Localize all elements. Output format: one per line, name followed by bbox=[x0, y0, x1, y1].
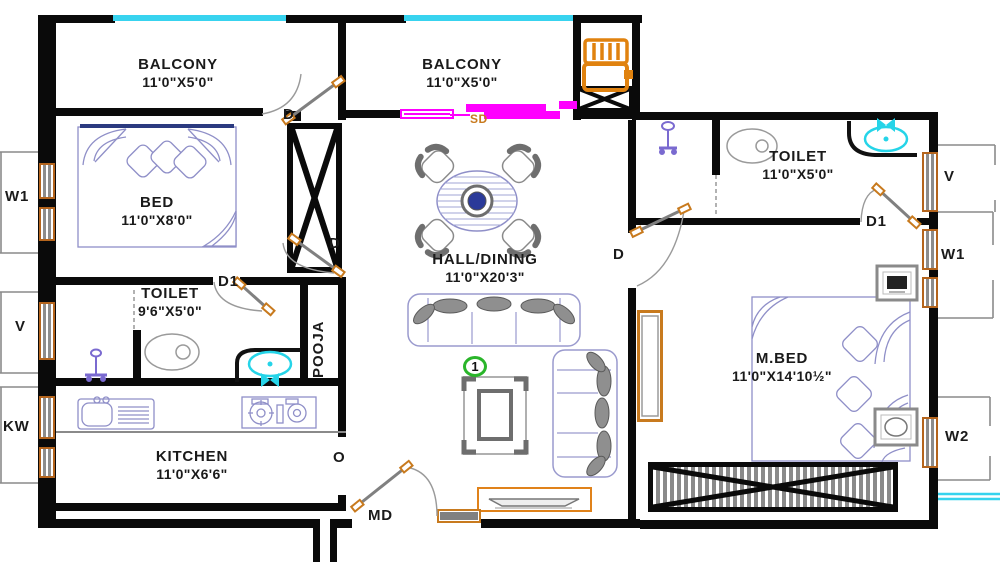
room-size: 11'0"X14'10½" bbox=[692, 368, 872, 385]
unit-number-marker: 1 bbox=[463, 356, 487, 377]
door-mbed bbox=[630, 204, 691, 286]
tv-icon bbox=[489, 499, 579, 508]
floor-plan: BALCONY 11'0"X5'0" BALCONY 11'0"X5'0" BE… bbox=[0, 0, 1000, 568]
wc-icon bbox=[145, 334, 199, 370]
window-label-w1-right: W1 bbox=[941, 246, 965, 264]
room-size: 11'0"X8'0" bbox=[67, 212, 247, 229]
door1-label: D1 bbox=[218, 273, 239, 291]
shower-icon bbox=[659, 122, 677, 154]
door-label: D bbox=[283, 106, 295, 124]
kitchen-window-label: KW bbox=[3, 418, 30, 436]
room-name: TOILET bbox=[708, 148, 888, 166]
room-label-pooja: POOJA bbox=[310, 298, 328, 378]
room-size: 9'6"X5'0" bbox=[80, 303, 260, 320]
room-size: 11'0"X5'0" bbox=[372, 74, 552, 91]
bed-furniture bbox=[78, 126, 236, 247]
room-size: 11'0"X5'0" bbox=[708, 166, 888, 183]
window-label-w1-left: W1 bbox=[5, 188, 29, 206]
room-label-hall: HALL/DINING 11'0"X20'3" bbox=[395, 251, 575, 286]
washing-machine-icon bbox=[584, 40, 633, 90]
room-label-balcony-left: BALCONY 11'0"X5'0" bbox=[88, 56, 268, 91]
shower-icon bbox=[85, 350, 107, 382]
wall-tv-icon bbox=[877, 266, 917, 300]
dining-table bbox=[437, 171, 517, 231]
room-name: BALCONY bbox=[372, 56, 552, 74]
water-line-right bbox=[938, 494, 1000, 499]
window-label-w2-right: W2 bbox=[945, 428, 969, 446]
washbasin-icon bbox=[237, 350, 301, 387]
sofa-three-seater bbox=[408, 294, 580, 346]
wardrobe-cross bbox=[653, 467, 893, 507]
door-label: D bbox=[329, 235, 341, 253]
room-name: BALCONY bbox=[88, 56, 268, 74]
wardrobe-mbed-door bbox=[642, 316, 658, 416]
room-name: BED bbox=[67, 194, 247, 212]
stove-icon bbox=[242, 397, 316, 428]
room-size: 11'0"X5'0" bbox=[88, 74, 268, 91]
room-label-kitchen: KITCHEN 11'0"X6'6" bbox=[102, 448, 282, 483]
kitchen-sink-icon bbox=[78, 397, 154, 429]
main-door-label: MD bbox=[368, 507, 393, 525]
opening-label: O bbox=[333, 449, 345, 467]
door1-label: D1 bbox=[866, 213, 887, 231]
room-label-bed: BED 11'0"X8'0" bbox=[67, 194, 247, 229]
sofa-side bbox=[553, 349, 617, 479]
room-size: 11'0"X6'6" bbox=[102, 466, 282, 483]
ventilator-label-right: V bbox=[944, 168, 955, 186]
room-name: KITCHEN bbox=[102, 448, 282, 466]
room-name: HALL/DINING bbox=[395, 251, 575, 269]
room-size: 11'0"X20'3" bbox=[395, 269, 575, 286]
room-name: M.BED bbox=[692, 350, 872, 368]
room-label-mbed: M.BED 11'0"X14'10½" bbox=[692, 350, 872, 385]
bedside-table-lamp bbox=[875, 409, 917, 445]
sliding-door-label: SD bbox=[470, 112, 488, 126]
ventilator-label-left: V bbox=[15, 318, 26, 336]
room-label-balcony-mid: BALCONY 11'0"X5'0" bbox=[372, 56, 552, 91]
door-label: D bbox=[613, 246, 625, 264]
room-label-toilet-right: TOILET 11'0"X5'0" bbox=[708, 148, 888, 183]
door-balcony-left bbox=[262, 74, 345, 124]
coffee-table bbox=[464, 377, 526, 454]
